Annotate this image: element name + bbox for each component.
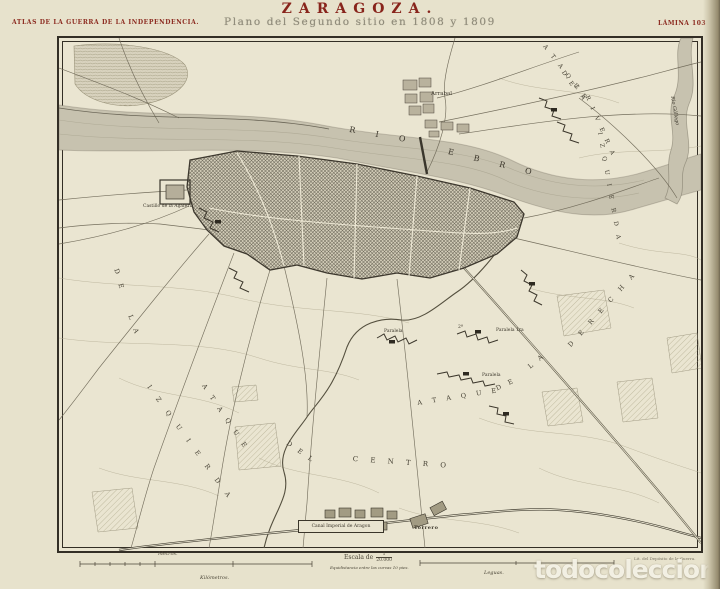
label-torrero: Torrero: [414, 526, 438, 531]
plate-number: LÁMINA 103: [658, 20, 706, 27]
equidistancia-label: Equidistancia entre las curvas 10 pies.: [330, 565, 409, 570]
arrabal-blocks: [403, 78, 469, 137]
metric-scale-bar: [75, 558, 325, 572]
castillo-aljaferia: [160, 180, 190, 204]
escala-fraction: 120.000: [376, 552, 392, 563]
escala-denominator: 20.000: [376, 558, 392, 563]
metros-label: Metros.: [158, 551, 178, 557]
label-paralela-south: Paralela: [482, 374, 501, 379]
escala-text: Escala de: [344, 554, 373, 561]
canal-label-box: Canal Imperial de Aragon: [298, 520, 384, 533]
todocoleccion-watermark: todocoleccion: [534, 555, 716, 584]
map-frame: R I O E B R O Rio Gállego Arrabal Castil…: [57, 36, 703, 553]
map-drawing: [59, 38, 701, 551]
canal-imperial: [119, 509, 701, 550]
label-paralela-2a: 2ª: [458, 326, 463, 331]
leguas-label: Leguas.: [484, 570, 504, 576]
page-edge-shadow: [703, 0, 720, 589]
label-paralela-west: Paralela: [384, 330, 403, 335]
kilometros-label: Kilómetros.: [200, 575, 229, 581]
label-arrabal: Arrabal: [431, 92, 452, 98]
escala-label: Escala de120.000: [344, 552, 392, 563]
label-paralela-first: Paralela 1ra: [496, 329, 524, 334]
map-title: ZARAGOZA.: [0, 1, 720, 17]
map-subtitle: Plano del Segundo sitio en 1808 y 1809: [0, 16, 720, 28]
terrain-hills: [74, 44, 188, 106]
label-castillo-aljaferia: Castillo de la Aljafería: [143, 205, 194, 210]
label-canal-imperial: Canal Imperial de Aragon: [312, 524, 371, 529]
field-patches: [92, 290, 701, 532]
